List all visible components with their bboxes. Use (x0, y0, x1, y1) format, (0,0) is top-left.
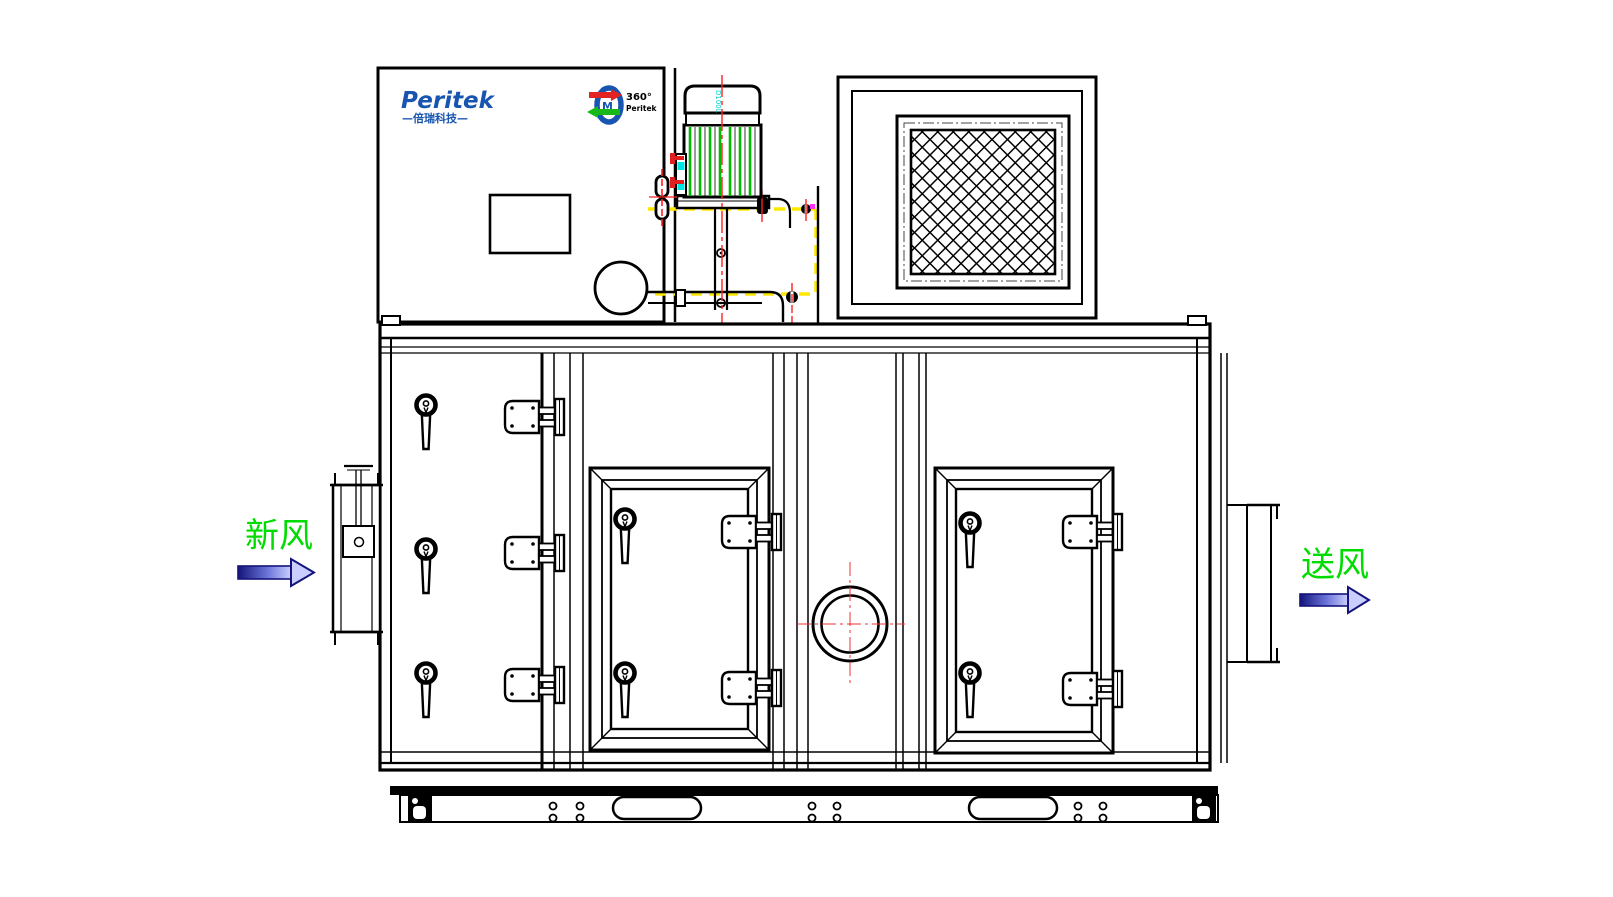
lifting-lug-left (382, 316, 400, 325)
forklift-slot (613, 797, 701, 819)
door-latch (505, 535, 564, 571)
dehumidifier-front-view-drawing: Peritek —倍瑞科技— M 360° Peritek (0, 0, 1613, 897)
control-panel-cutout (490, 195, 570, 253)
forklift-slot (969, 797, 1057, 819)
brand-wordmark: Peritek (401, 88, 496, 114)
cad-drawing-canvas: Peritek —倍瑞科技— M 360° Peritek (0, 0, 1613, 897)
drive-motor-assembly: D100L (648, 75, 818, 331)
cable-gland-hole (595, 262, 647, 314)
supply-air-outlet-flange (1221, 353, 1280, 763)
supply-air-annotation: 送风 (1300, 545, 1369, 613)
return-air-filter-box (838, 77, 1096, 318)
fresh-air-annotation: 新风 (238, 516, 314, 586)
control-box: Peritek —倍瑞科技— M 360° Peritek (378, 68, 675, 322)
supply-air-label: 送风 (1301, 545, 1369, 585)
rotor-logo-degrees: 360° (626, 92, 652, 103)
rotor-logo-brand: Peritek (626, 104, 658, 113)
fresh-air-inlet-flange (330, 466, 383, 645)
logo-arrow-out-green (598, 109, 620, 115)
supply-air-arrow-shaft (1300, 594, 1348, 606)
brand-tagline: —倍瑞科技— (402, 111, 468, 125)
motor-cooling-fins (690, 127, 750, 196)
fresh-air-arrow-shaft (238, 566, 291, 579)
lifting-lug-right (1188, 316, 1206, 325)
motor-frame-size-label: D100L (714, 90, 722, 113)
middle-access-door (590, 468, 781, 750)
fresh-air-arrow-head (291, 559, 314, 586)
fresh-air-label: 新风 (245, 516, 313, 556)
door-latch (1063, 514, 1122, 550)
right-access-door (935, 468, 1122, 753)
filter-mesh (911, 130, 1055, 274)
cyan-spacer (678, 162, 685, 170)
base-foot-left (408, 795, 432, 821)
door-latch (722, 514, 781, 550)
magenta-mark (810, 204, 815, 209)
door-latch (1063, 671, 1122, 707)
base-foot-right (1192, 795, 1216, 821)
logo-arrow-in-red (589, 92, 611, 98)
door-latch (505, 399, 564, 435)
door-latch (505, 667, 564, 703)
door-latch (722, 670, 781, 706)
base-top-flange (390, 786, 1218, 795)
supply-air-arrow-head (1348, 587, 1369, 613)
base-frame (390, 786, 1218, 822)
